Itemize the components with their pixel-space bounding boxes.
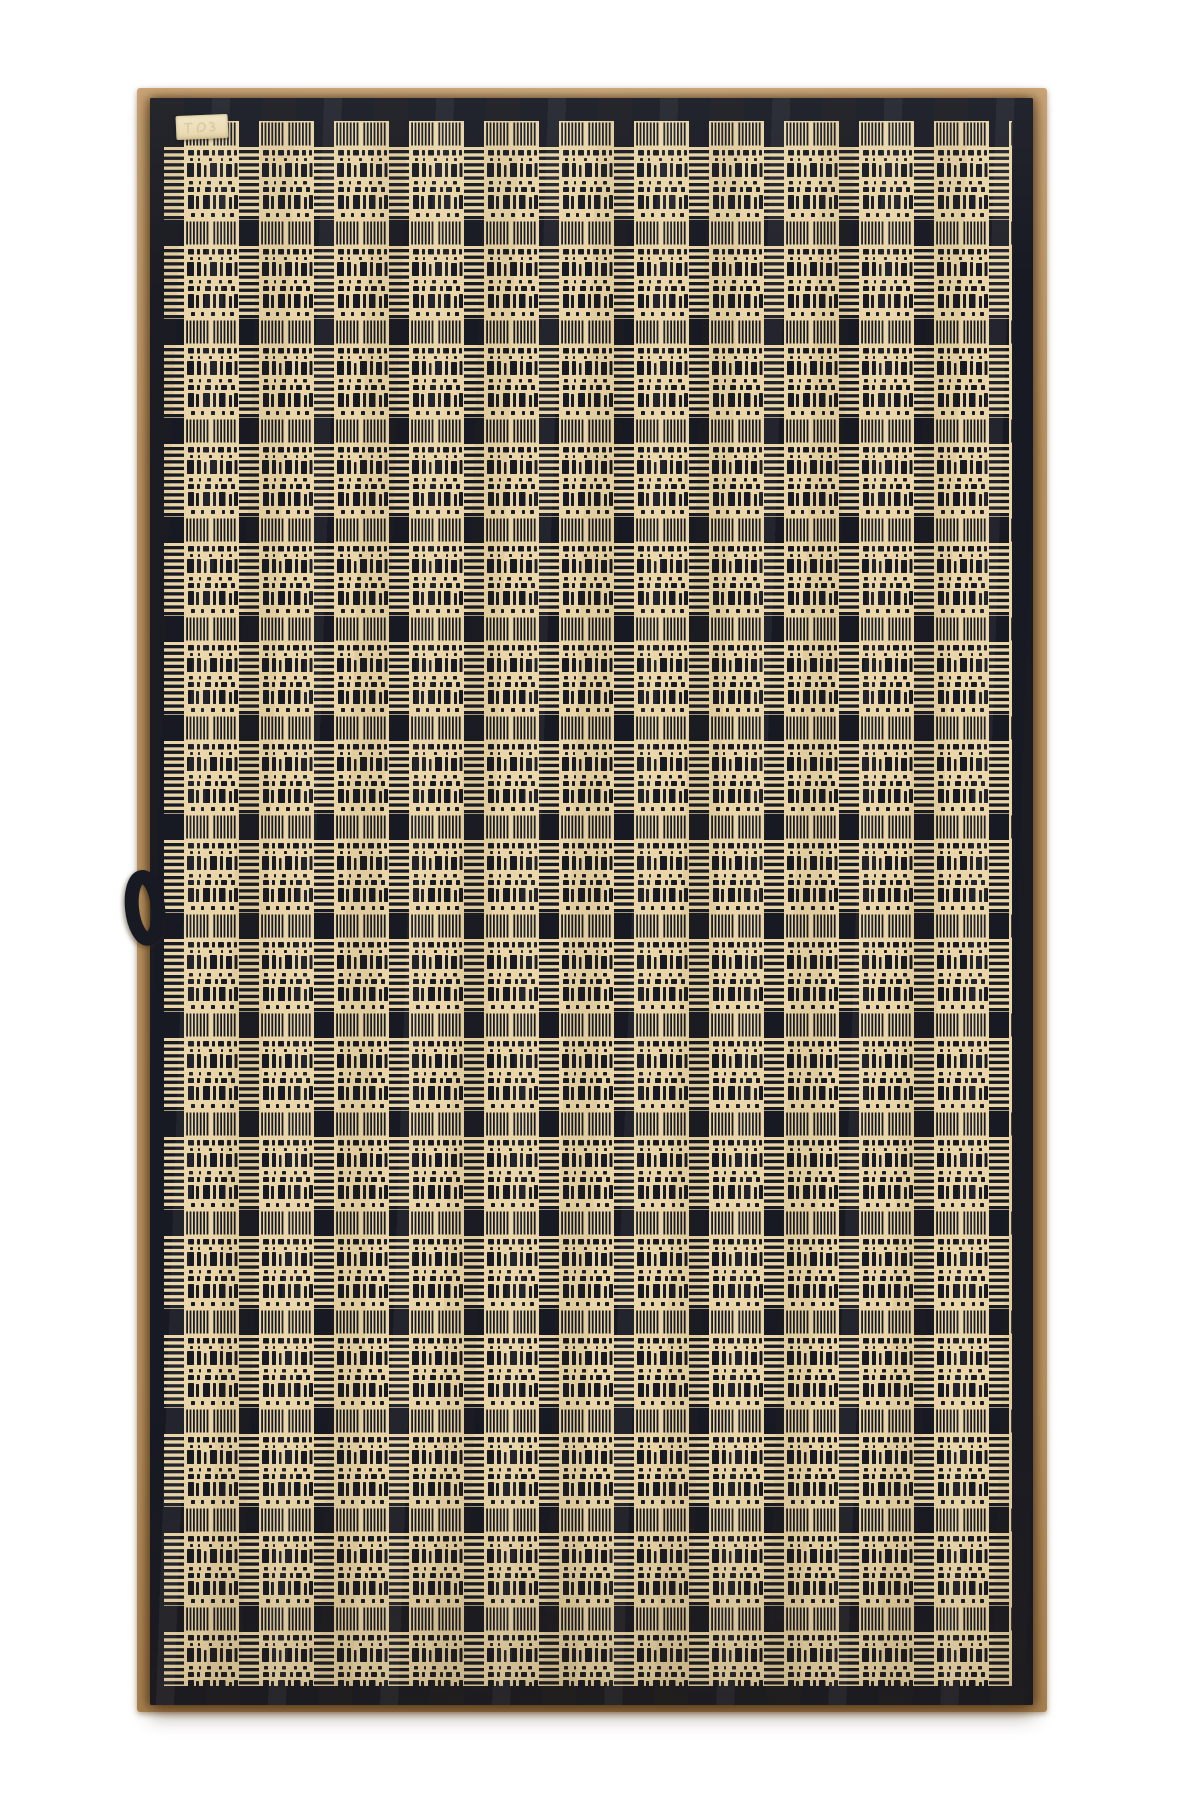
towel-hem-top [150,98,1033,121]
tag-logo-mark [176,114,229,140]
brand-tag [176,114,229,140]
hanging-loop-tape [129,876,161,940]
towel-hem-right [1012,98,1033,1705]
towel-hem-bottom [150,1686,1033,1705]
towel-pattern [164,121,1012,1686]
hanging-loop [121,866,167,950]
towel [150,98,1033,1705]
photo-canvas [0,0,1200,1800]
